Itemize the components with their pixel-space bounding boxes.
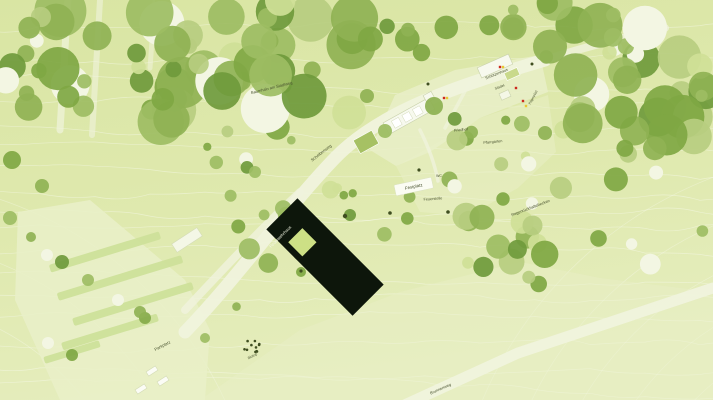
tree-circle [496, 192, 509, 205]
tree-circle [462, 257, 474, 269]
tree-circle [508, 240, 527, 259]
tree-circle [31, 63, 46, 78]
tree-circle [602, 45, 616, 59]
biotope-dot [254, 340, 257, 343]
tree-circle [604, 28, 623, 47]
tree-circle [203, 143, 211, 151]
red-flag-marker [443, 97, 445, 99]
tree-circle [640, 254, 661, 275]
tree-circle [82, 274, 94, 286]
site-plan-canvas: Feuerwehrhaus Baumhain am StadtwegScheib… [0, 0, 713, 400]
tree-circle [3, 151, 21, 169]
tree-circle [241, 24, 276, 59]
biotope-dot [258, 344, 261, 347]
tree-circle [208, 0, 245, 35]
tree-circle [232, 302, 241, 311]
tree-circle [112, 294, 124, 306]
tree-circle [401, 23, 415, 37]
tree-circle [486, 235, 510, 259]
tree-circle [697, 225, 709, 237]
tree-circle [358, 27, 383, 52]
tree-circle [259, 210, 270, 221]
tree-circle [231, 220, 245, 234]
tree-circle [259, 253, 279, 273]
tree-circle [522, 271, 535, 284]
tree-circle [152, 88, 175, 111]
tree-circle [340, 191, 349, 200]
tree-circle [377, 227, 392, 242]
biotope-dot [250, 344, 253, 347]
tree-circle [222, 126, 234, 138]
tree-circle [643, 137, 667, 161]
tree-circle [508, 5, 519, 16]
tree-circle [613, 66, 641, 94]
biotope-dot [246, 349, 249, 352]
tree-circle [606, 8, 621, 23]
biotope-dot [255, 346, 258, 349]
tree-circle [349, 189, 357, 197]
tree-circle [533, 30, 567, 64]
tree-circle [470, 205, 495, 230]
tree-circle [41, 249, 53, 261]
tree-circle [616, 140, 633, 157]
tree-circle [287, 136, 296, 145]
tree-circle [379, 19, 394, 34]
tree-circle [18, 17, 40, 39]
tree-circle [500, 14, 526, 40]
tree-circle [626, 238, 637, 249]
tree-circle [623, 6, 667, 50]
small-dot-marker [299, 269, 302, 272]
tree-circle [494, 157, 508, 171]
red-flag-marker [522, 100, 524, 102]
small-dot-marker [427, 83, 430, 86]
tree-circle [35, 179, 49, 193]
tree-circle [501, 116, 510, 125]
tree-circle [66, 349, 78, 361]
yellow-flag-marker [502, 66, 504, 68]
tree-circle [378, 124, 392, 138]
tree-circle [55, 255, 69, 269]
tree-circle [473, 257, 493, 277]
site-plan: Feuerwehrhaus Baumhain am StadtwegScheib… [0, 0, 713, 400]
tree-circle [189, 54, 209, 74]
tree-circle [523, 216, 543, 236]
tree-circle [447, 179, 461, 193]
tree-circle [696, 90, 708, 102]
tree-circle [83, 21, 112, 50]
red-flag-marker [499, 66, 501, 68]
tree-circle [550, 177, 572, 199]
yellow-flag-marker [446, 97, 448, 99]
tree-circle [435, 16, 459, 40]
wc-label-group: WC [436, 174, 442, 178]
tree-circle [26, 232, 36, 242]
tree-circle [605, 96, 638, 129]
tree-circle [563, 104, 603, 144]
tree-circle [604, 167, 628, 191]
biotope-dot [243, 348, 246, 351]
tree-circle [42, 337, 54, 349]
tree-circle [249, 166, 261, 178]
small-dot-marker [343, 214, 347, 218]
tree-circle [448, 112, 462, 126]
yellow-flag-marker [525, 105, 527, 107]
small-dot-marker [446, 210, 450, 214]
tree-circle [332, 96, 366, 130]
red-flag-marker [515, 87, 517, 89]
small-dot-marker [531, 63, 534, 66]
tree-circle [531, 241, 558, 268]
tree-circle [447, 129, 468, 150]
tree-circle [200, 333, 210, 343]
tree-circle [77, 74, 91, 88]
biotope-dot [246, 340, 249, 343]
tree-circle [134, 306, 146, 318]
wc-label: WC [436, 174, 442, 178]
tree-circle [332, 183, 342, 193]
tree-circle [210, 156, 223, 169]
tree-circle [225, 190, 237, 202]
tree-circle [479, 15, 499, 35]
tree-circle [590, 230, 607, 247]
tree-circle [19, 86, 34, 101]
tree-circle [514, 116, 530, 132]
tree-circle [649, 166, 663, 180]
tree-circle [521, 156, 536, 171]
tree-circle [166, 61, 182, 77]
tree-circle [239, 238, 260, 259]
tree-circle [360, 89, 374, 103]
tree-circle [401, 212, 414, 225]
tree-circle [127, 44, 146, 63]
small-dot-marker [417, 168, 420, 171]
tree-circle [3, 211, 17, 225]
tree-circle [538, 126, 552, 140]
tree-circle [203, 72, 241, 110]
small-dot-marker [388, 211, 392, 215]
tree-circle [425, 97, 443, 115]
